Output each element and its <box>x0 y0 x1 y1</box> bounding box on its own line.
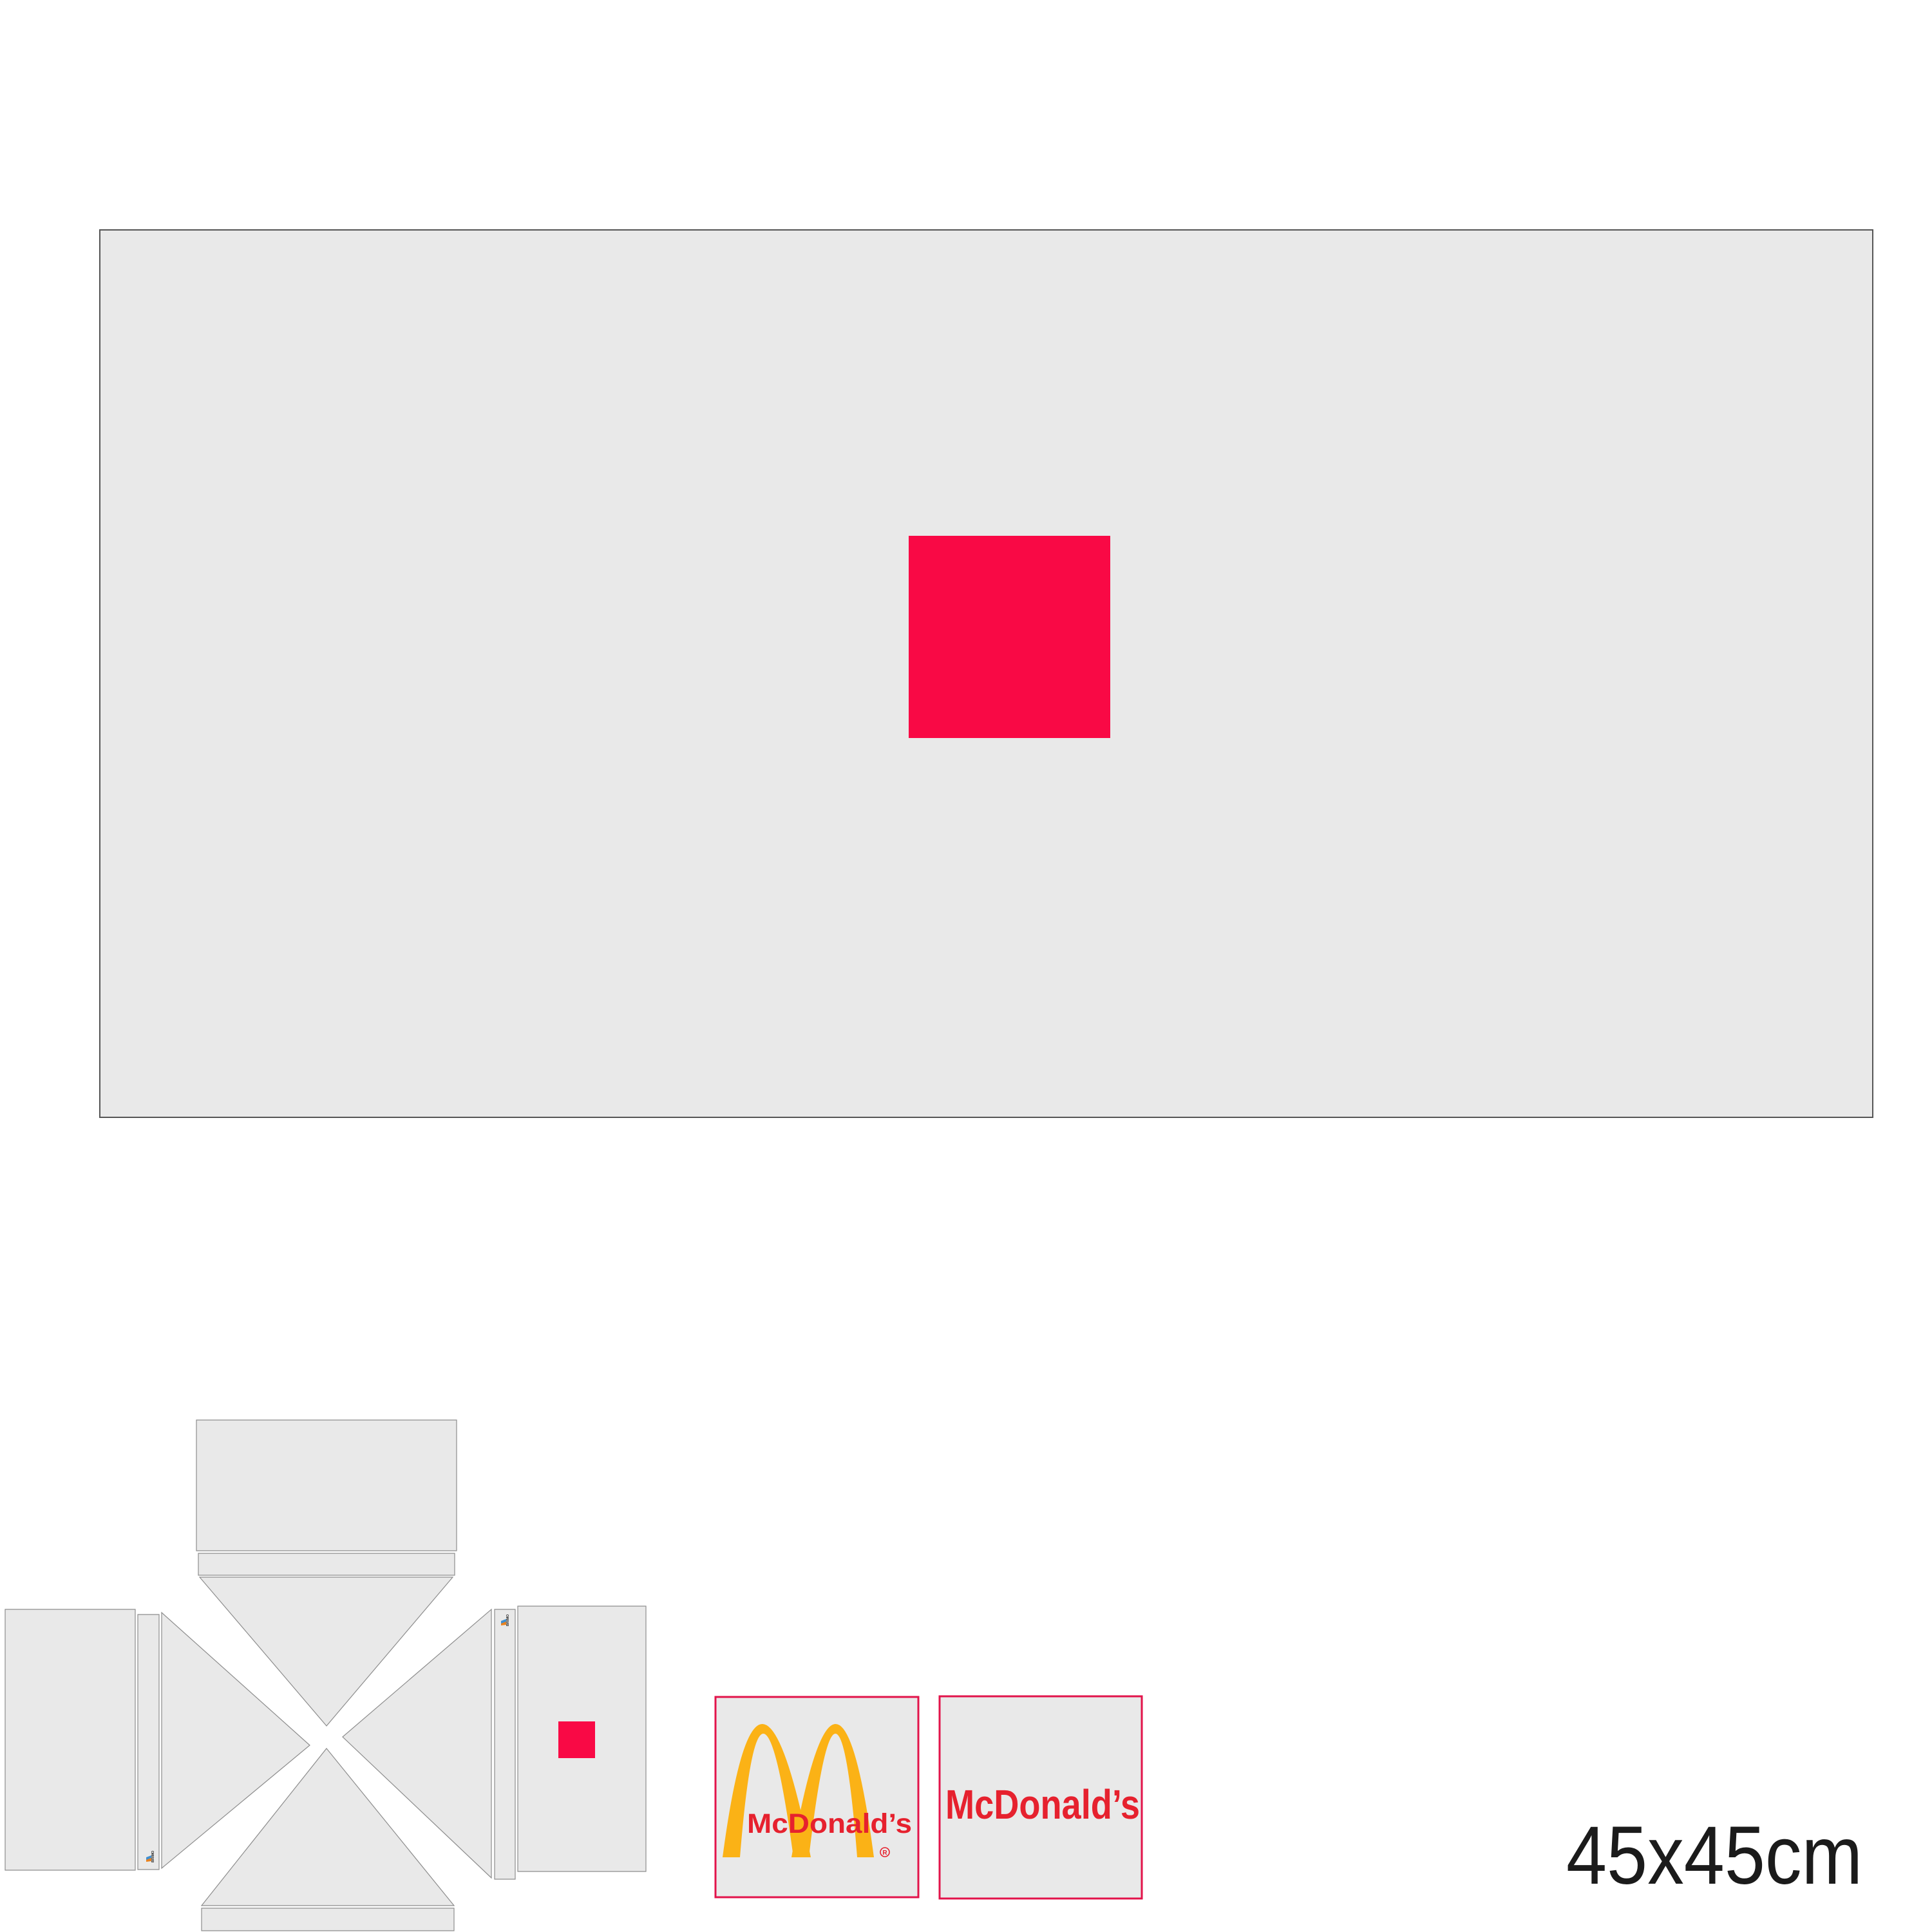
svg-text:McDonald’s: McDonald’s <box>945 1781 1140 1828</box>
svg-text:McDonald’s: McDonald’s <box>747 1808 912 1839</box>
svg-text:45x45cm: 45x45cm <box>1566 1810 1862 1902</box>
svg-text:BRIMO: BRIMO <box>506 1614 510 1626</box>
svg-text:BRIMO: BRIMO <box>151 1850 155 1862</box>
svg-text:R: R <box>882 1850 887 1857</box>
